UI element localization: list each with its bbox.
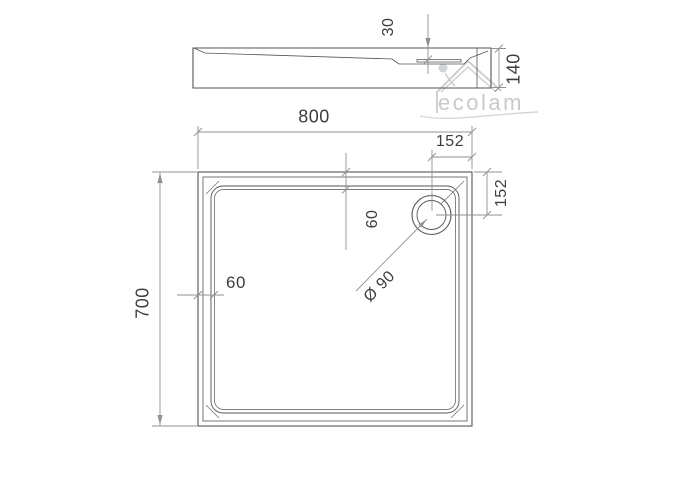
dim-700-arrow-bottom — [157, 415, 162, 425]
side-view-right-rim — [470, 51, 488, 58]
dimension-rim-top-label: 60 — [364, 210, 382, 229]
side-view-dimension-lines — [424, 14, 506, 92]
dim-30-arrow — [425, 38, 430, 48]
plan-view-outline — [198, 172, 472, 426]
dimension-height-label: 140 — [504, 53, 525, 85]
dimension-length-label: 700 — [133, 287, 154, 319]
dimension-depth-label: 30 — [380, 18, 398, 37]
dimension-drain-offset-side-label: 152 — [493, 179, 511, 207]
tray-outer-edge — [198, 172, 472, 426]
dim-700-extensions — [152, 172, 197, 426]
tray-rim-edge — [203, 177, 467, 421]
side-view-left-rim — [194, 48, 205, 53]
logo-figure-head — [439, 64, 448, 73]
basin-outer-edge — [211, 186, 459, 413]
side-view-basin-floor — [205, 53, 392, 59]
dimension-drain-offset-top-label: 152 — [436, 133, 464, 151]
basin-corner-ticks — [206, 181, 464, 418]
drawing-linework — [0, 0, 677, 501]
plan-view-dimension-lines — [152, 126, 502, 426]
dimension-rim-left-label: 60 — [226, 273, 246, 293]
shower-tray-technical-drawing: 800 700 140 30 152 152 60 60 Ø 90 ecolam — [0, 0, 677, 501]
dim-700-arrow-top — [157, 173, 162, 183]
watermark-brand-text: ecolam — [438, 90, 524, 116]
side-view-drain-recess — [392, 58, 470, 64]
side-view-drain-cover — [417, 60, 461, 63]
dimension-width-label: 800 — [298, 107, 330, 128]
